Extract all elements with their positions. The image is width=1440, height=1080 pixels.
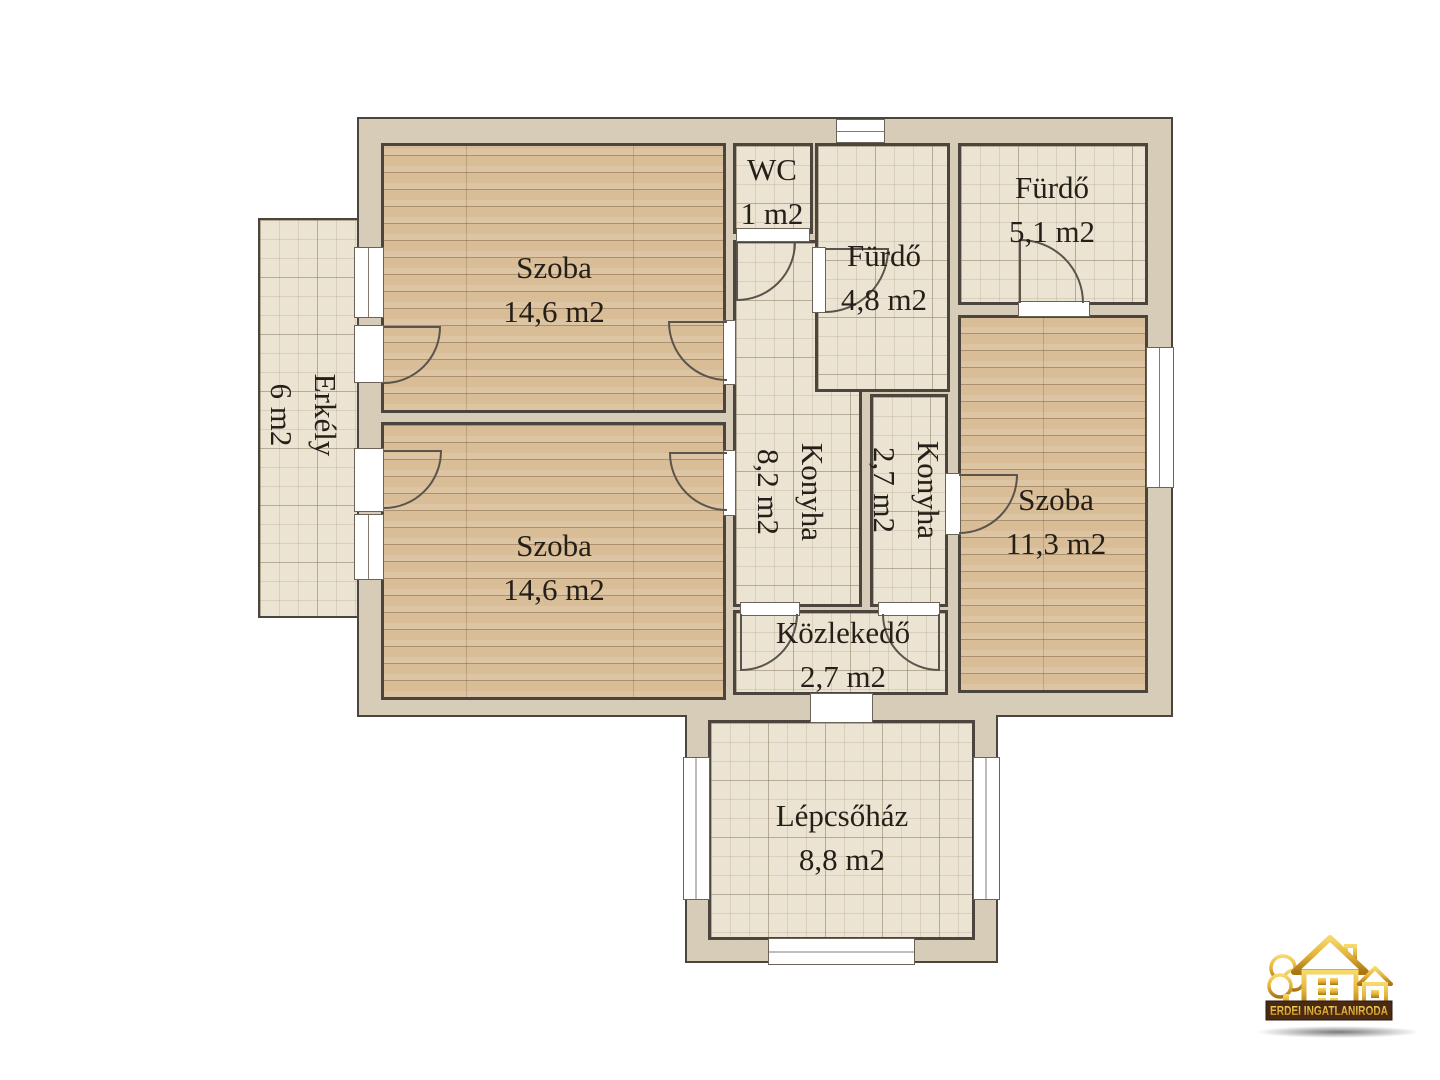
room-area: 11,3 m2 (1006, 522, 1106, 566)
room-name: Konyha (795, 443, 830, 541)
label-konyha-27: Konyha 2,7 m2 (862, 441, 950, 539)
label-szoba-2: Szoba 14,6 m2 (503, 524, 605, 612)
window-lepcsohaz-left (683, 757, 710, 900)
label-konyha-82: Konyha 8,2 m2 (746, 443, 834, 541)
window-szoba2-balcony (354, 514, 384, 580)
label-furdo-51: Fürdő 5,1 m2 (1009, 166, 1095, 254)
window-szoba1-balcony (354, 247, 384, 318)
window-szoba113-right (1146, 347, 1174, 488)
door-gap-szoba2-balcony (354, 448, 384, 512)
room-name: Szoba (1018, 482, 1094, 517)
room-area: 6 m2 (259, 374, 303, 457)
room-area: 4,8 m2 (841, 278, 927, 322)
room-name: Szoba (516, 528, 592, 563)
label-furdo-48: Fürdő 4,8 m2 (841, 234, 927, 322)
door-gap-szoba1-hall (723, 320, 736, 385)
agency-logo: ERDEI INGATLANIRODA (1250, 920, 1440, 1045)
room-area: 2,7 m2 (776, 655, 910, 699)
logo-shadow (1256, 1026, 1420, 1038)
room-name: WC (747, 152, 797, 187)
room-area: 8,2 m2 (746, 443, 790, 541)
room-area: 2,7 m2 (862, 441, 906, 539)
label-szoba-113: Szoba 11,3 m2 (1006, 478, 1106, 566)
label-lepcsohaz: Lépcsőház 8,8 m2 (776, 794, 909, 882)
room-name: Erkély (308, 374, 343, 457)
house-icon (1294, 938, 1366, 1008)
room-area: 14,6 m2 (503, 290, 605, 334)
room-area: 14,6 m2 (503, 568, 605, 612)
window-lepcsohaz-bottom (768, 938, 915, 965)
door-gap-szoba2-hall (723, 450, 736, 516)
room-name: Lépcsőház (776, 798, 909, 833)
door-gap-furdo51 (1018, 301, 1090, 317)
label-erkely: Erkély 6 m2 (259, 374, 347, 457)
window-lepcsohaz-right (973, 757, 1000, 900)
logo-banner: ERDEI INGATLANIRODA (1266, 1001, 1392, 1020)
floor-plan: Szoba 14,6 m2 Szoba 14,6 m2 WC 1 m2 Fürd… (0, 0, 1440, 1080)
room-name: Konyha (911, 441, 946, 539)
room-area: 8,8 m2 (776, 838, 909, 882)
room-area: 5,1 m2 (1009, 210, 1095, 254)
room-area: 1 m2 (741, 192, 804, 236)
label-wc: WC 1 m2 (741, 148, 804, 236)
door-gap-szoba1-balcony (354, 325, 384, 383)
window-top-wall (836, 119, 885, 143)
room-name: Közlekedő (776, 615, 910, 650)
label-szoba-1: Szoba 14,6 m2 (503, 246, 605, 334)
door-gap-furdo48 (812, 247, 826, 313)
room-name: Szoba (516, 250, 592, 285)
label-kozlekedo: Közlekedő 2,7 m2 (776, 611, 910, 699)
room-name: Fürdő (847, 238, 921, 273)
room-name: Fürdő (1015, 170, 1089, 205)
brand-text: ERDEI INGATLANIRODA (1270, 1003, 1388, 1018)
